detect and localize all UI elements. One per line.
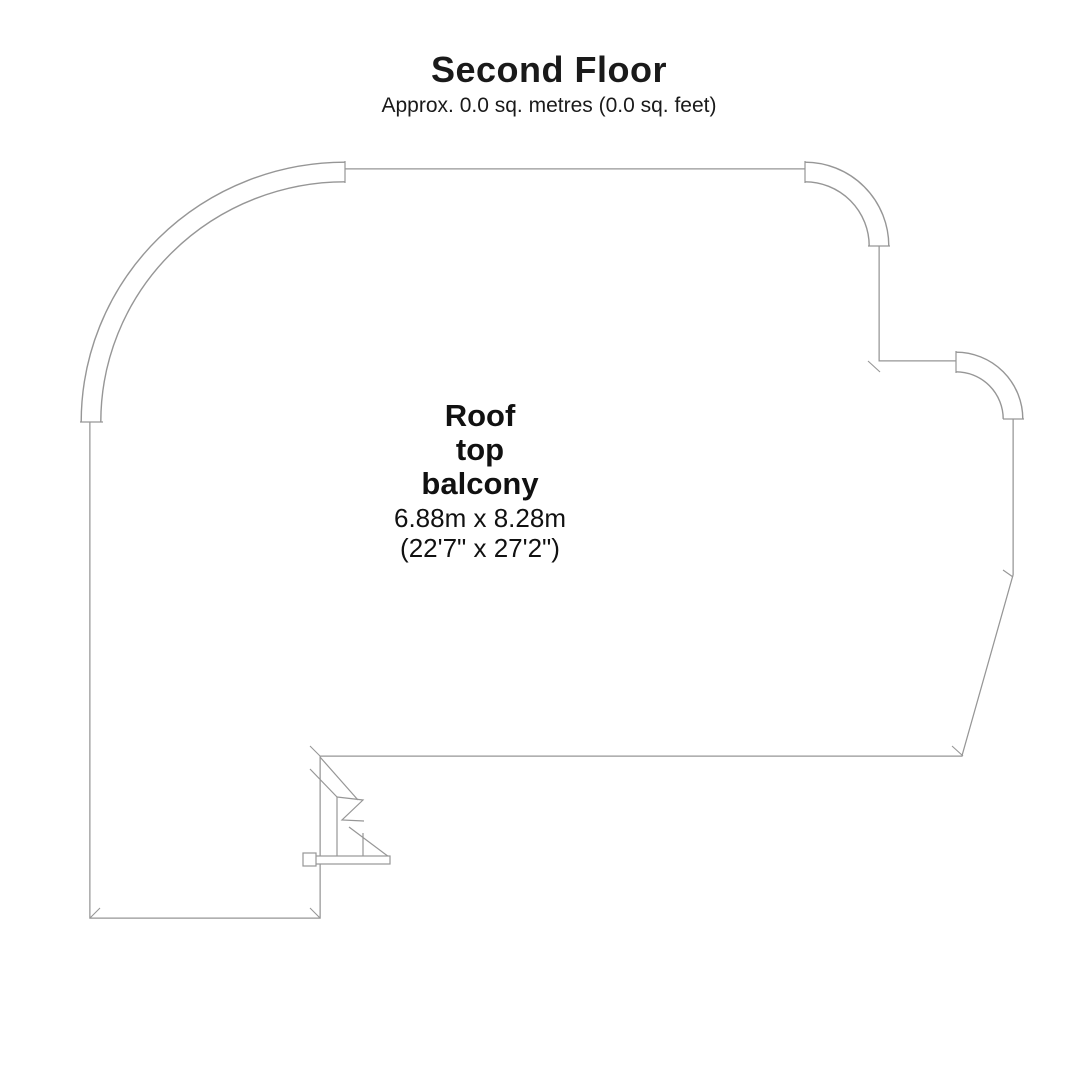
room-name-line-2: top [280,433,680,467]
room-name-line-3: balcony [280,467,680,501]
stair-edge-lower [349,827,389,857]
room-dimensions-metric: 6.88m x 8.28m [280,503,680,533]
room-label: Roof top balcony 6.88m x 8.28m (22'7" x … [280,399,680,563]
stair-landing-bar [305,856,390,864]
room-name-line-1: Roof [280,399,680,433]
floorplan-page: Second Floor Approx. 0.0 sq. metres (0.0… [0,0,1080,1080]
room-dimensions-imperial: (22'7" x 27'2") [280,533,680,563]
stair-edge-upper [320,757,358,800]
stair-break-line [337,797,364,821]
stair-newel-post [303,853,316,866]
